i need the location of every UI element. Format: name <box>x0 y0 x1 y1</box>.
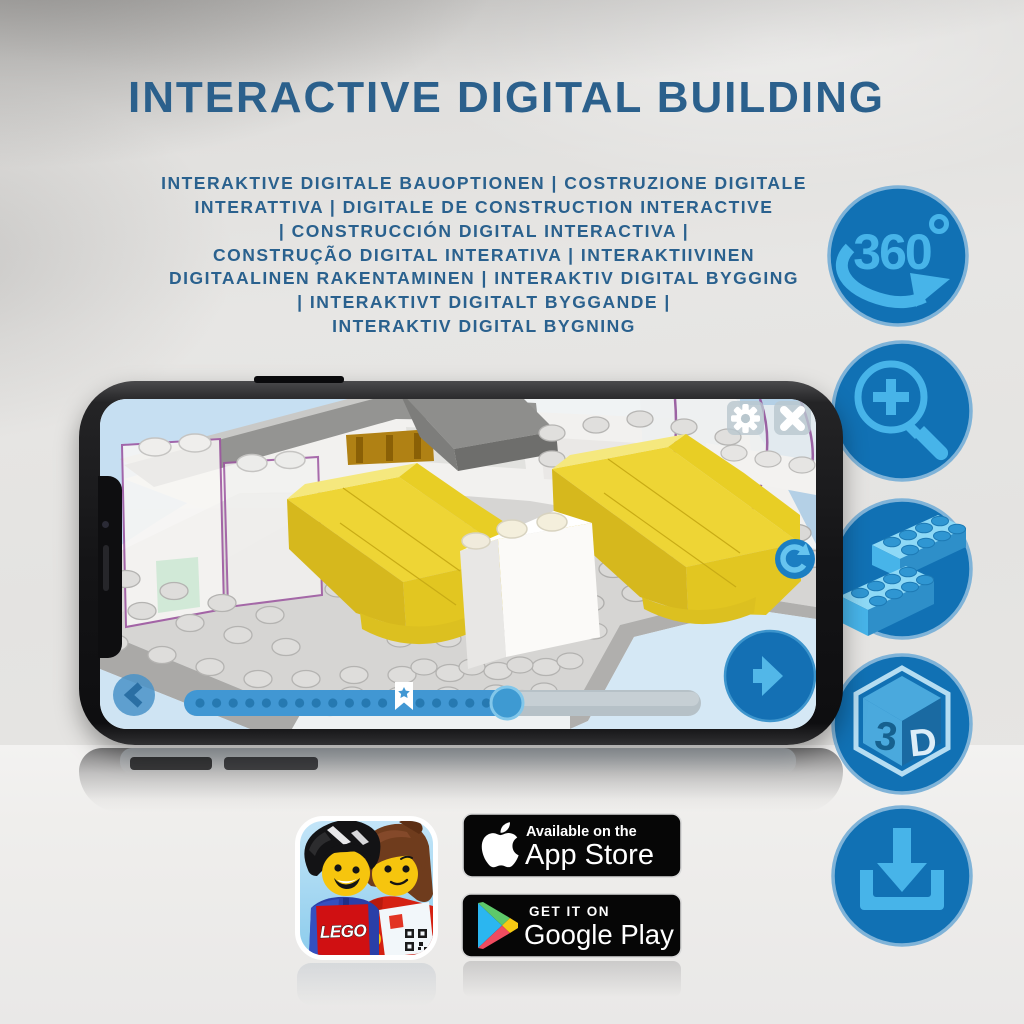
svg-text:App Store: App Store <box>525 839 654 871</box>
svg-text:D: D <box>907 721 939 766</box>
svg-text:GET IT ON: GET IT ON <box>529 904 610 919</box>
svg-text:Google Play: Google Play <box>524 919 674 950</box>
svg-text:Available on the: Available on the <box>526 824 637 840</box>
svg-text:LEGO: LEGO <box>320 921 367 942</box>
svg-text:360: 360 <box>853 224 931 280</box>
